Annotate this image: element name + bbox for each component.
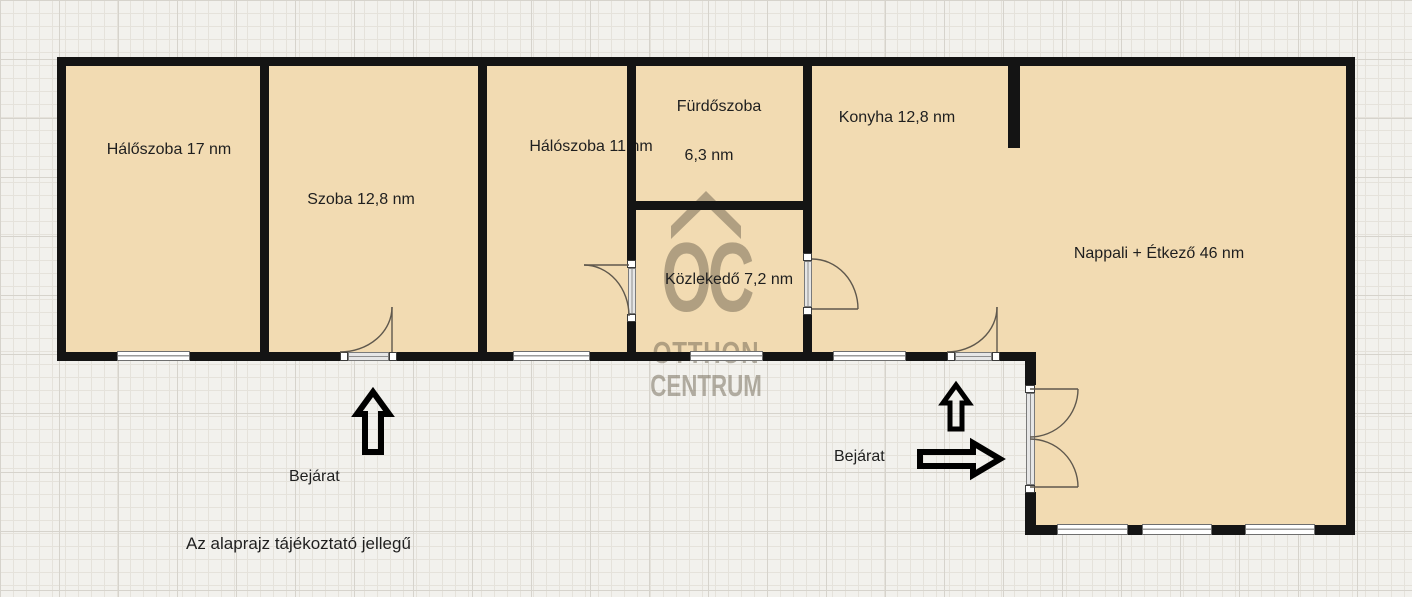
room-label-living-dining: Nappali + Étkező 46 nm xyxy=(1074,245,1244,263)
floor-plan-canvas: OC OTTHON CENTRUM Hálőszoba 17 nm Szoba … xyxy=(0,0,1412,597)
window xyxy=(117,351,190,361)
room-label-hallway: Közlekedő 7,2 nm xyxy=(665,271,793,289)
window xyxy=(690,351,763,361)
wall-bedroom11-bathroom xyxy=(627,66,636,260)
wall-bathroom-kitchen xyxy=(803,66,812,253)
door-jamb xyxy=(1025,485,1035,493)
door-jamb xyxy=(803,307,812,315)
door-jamb xyxy=(627,314,636,322)
room-label-kitchen: Konyha 12,8 nm xyxy=(839,109,956,127)
room-label-bedroom-17: Hálőszoba 17 nm xyxy=(107,141,232,159)
entrance-label-left: Bejárat xyxy=(289,468,340,486)
door-jamb xyxy=(992,352,1000,361)
wall-bedroom11-hallway xyxy=(627,322,636,352)
door-opening xyxy=(348,352,389,361)
door-jamb xyxy=(340,352,348,361)
door-jamb xyxy=(1025,385,1035,393)
wall-bottom-extension xyxy=(1025,525,1057,535)
door-jamb xyxy=(389,352,397,361)
wall-kitchen-stub xyxy=(1008,66,1020,148)
entrance-arrow-up-right-icon xyxy=(943,385,969,429)
wall-bottom-main xyxy=(190,352,340,361)
wall-left xyxy=(57,66,66,361)
wall-bottom-extension xyxy=(1315,525,1346,535)
wall-top xyxy=(57,57,1355,66)
door-opening xyxy=(1026,393,1035,485)
wall-hallway-living xyxy=(803,315,812,352)
watermark-text-centrum: CENTRUM xyxy=(650,368,762,404)
wall-bottom-main xyxy=(397,352,513,361)
wall-bottom-main xyxy=(906,352,947,361)
door-opening xyxy=(628,268,636,314)
door-opening xyxy=(955,352,992,361)
wall-bottom-main xyxy=(763,352,833,361)
wall-step-left xyxy=(1025,492,1036,525)
window xyxy=(1057,524,1128,535)
window xyxy=(513,351,590,361)
door-jamb xyxy=(947,352,955,361)
door-opening xyxy=(804,261,812,307)
wall-szoba-bedroom11 xyxy=(478,66,487,352)
wall-bottom-main xyxy=(1000,352,1036,361)
door-jamb xyxy=(803,253,812,261)
entrance-arrow-up-left-icon xyxy=(357,392,389,452)
wall-bathroom-hallway xyxy=(627,201,812,210)
room-label-bathroom: Fürdőszoba xyxy=(677,98,762,116)
wall-bottom-extension xyxy=(1128,525,1142,535)
wall-right xyxy=(1346,57,1355,535)
entrance-label-right: Bejárat xyxy=(834,448,885,466)
wall-bottom-main xyxy=(57,352,117,361)
window xyxy=(833,351,906,361)
room-label-szoba: Szoba 12,8 nm xyxy=(307,191,415,209)
wall-step-left xyxy=(1025,361,1036,385)
room-label-bathroom-area: 6,3 nm xyxy=(685,147,734,165)
wall-bottom-main xyxy=(590,352,690,361)
wall-bedroom17-szoba xyxy=(260,66,269,352)
entrance-arrow-right-icon xyxy=(920,443,1000,475)
window xyxy=(1245,524,1315,535)
window xyxy=(1142,524,1212,535)
door-jamb xyxy=(627,260,636,268)
wall-bottom-extension xyxy=(1212,525,1245,535)
room-fill-living-extension xyxy=(1034,352,1346,525)
disclaimer-text: Az alaprajz tájékoztató jellegű xyxy=(186,534,411,554)
